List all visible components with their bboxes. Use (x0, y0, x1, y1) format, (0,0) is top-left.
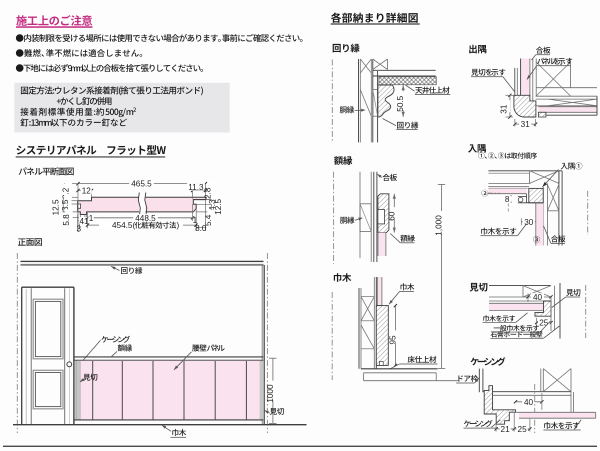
svg-text:12: 12 (82, 186, 92, 195)
svg-text:11.3: 11.3 (188, 183, 204, 192)
svg-text:12.5: 12.5 (52, 199, 61, 215)
svg-text:25: 25 (518, 425, 528, 434)
svg-text:1: 1 (193, 216, 198, 225)
svg-text:1000: 1000 (266, 384, 275, 403)
svg-text:2.8: 2.8 (204, 187, 213, 199)
svg-text:31: 31 (500, 104, 509, 114)
svg-text:8: 8 (505, 195, 510, 204)
svg-text:5.8: 5.8 (62, 214, 71, 226)
svg-text:1: 1 (89, 214, 94, 223)
svg-text:40: 40 (524, 398, 534, 407)
svg-text:21: 21 (501, 425, 511, 434)
svg-text:60: 60 (387, 211, 396, 221)
svg-text:3: 3 (77, 224, 82, 233)
svg-text:40: 40 (533, 293, 543, 302)
svg-text:12.5: 12.5 (214, 198, 223, 214)
svg-text:25: 25 (539, 319, 549, 328)
svg-text:1,000: 1,000 (435, 215, 444, 236)
svg-text:3.5: 3.5 (61, 199, 70, 211)
svg-text:95: 95 (388, 335, 397, 345)
svg-text:465.5: 465.5 (131, 180, 152, 189)
svg-text:8.0: 8.0 (195, 224, 207, 233)
svg-text:454.5(: 454.5( (112, 221, 135, 230)
svg-text:): ) (177, 221, 180, 230)
svg-text:50.5: 50.5 (396, 95, 405, 111)
svg-text:31: 31 (521, 120, 531, 129)
